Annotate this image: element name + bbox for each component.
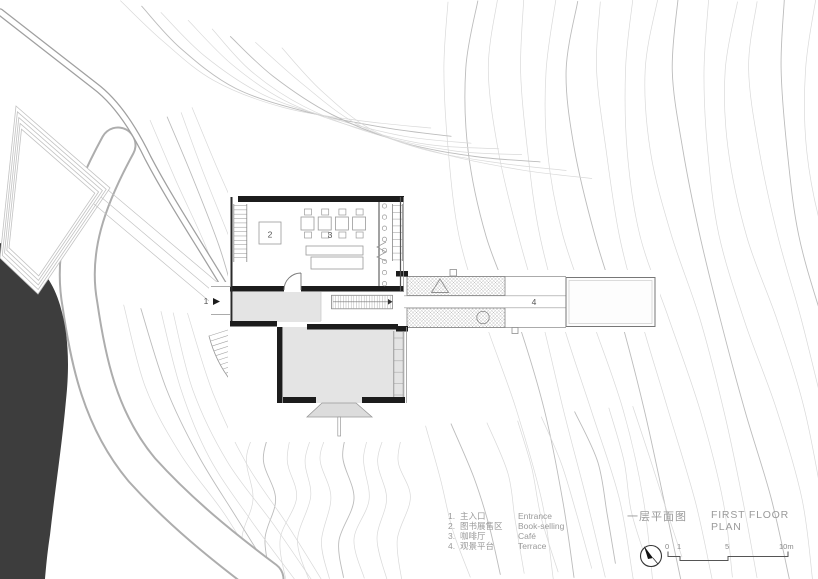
legend-item-en: Entrance (518, 511, 552, 521)
entry-hall-fill (233, 292, 321, 322)
legend-item: 4.观景平台Terrace (448, 541, 564, 551)
floor-plan-page: 1 2 3 4 0 1 5 10m 1.主入口Entrance 2.图书展售区B… (0, 0, 818, 579)
room-label-cafe: 3 (328, 230, 333, 240)
legend-item-zh: 咖啡厅 (460, 531, 518, 541)
room-label-entrance: 1 (204, 296, 209, 306)
scale-tick: 0 (665, 542, 669, 551)
legend: 1.主入口Entrance 2.图书展售区Book-selling 3.咖啡厅C… (448, 511, 564, 551)
lower-room-fill (283, 327, 405, 403)
viewing-platform (566, 278, 655, 327)
wall-cap-square (512, 328, 518, 334)
legend-item-number: 2. (448, 521, 460, 531)
room-label-terrace: 4 (532, 297, 537, 307)
scale-tick: 10m (779, 542, 794, 551)
north-arrow-icon (641, 546, 662, 567)
legend-item-en: Café (518, 531, 536, 541)
legend-item-number: 3. (448, 531, 460, 541)
pond (0, 243, 68, 579)
scale-tick: 5 (725, 542, 729, 551)
room-label-book-area: 2 (268, 230, 273, 240)
flagpole (338, 417, 341, 436)
legend-item-number: 1. (448, 511, 460, 521)
legend-item-number: 4. (448, 541, 460, 551)
legend-item-en: Book-selling (518, 521, 564, 531)
scale-tick: 1 (677, 542, 681, 551)
upper-block-ground (228, 191, 414, 294)
legend-item: 1.主入口Entrance (448, 511, 564, 521)
site-plan-drawing: 1 2 3 4 0 1 5 10m (0, 0, 818, 579)
legend-item-zh: 观景平台 (460, 541, 518, 551)
legend-item-zh: 图书展售区 (460, 521, 518, 531)
legend-item: 2.图书展售区Book-selling (448, 521, 564, 531)
legend-item: 3.咖啡厅Café (448, 531, 564, 541)
legend-item-en: Terrace (518, 541, 546, 551)
legend-item-zh: 主入口 (460, 511, 518, 521)
wall-cap-square (450, 270, 457, 277)
building-plan (209, 191, 660, 442)
